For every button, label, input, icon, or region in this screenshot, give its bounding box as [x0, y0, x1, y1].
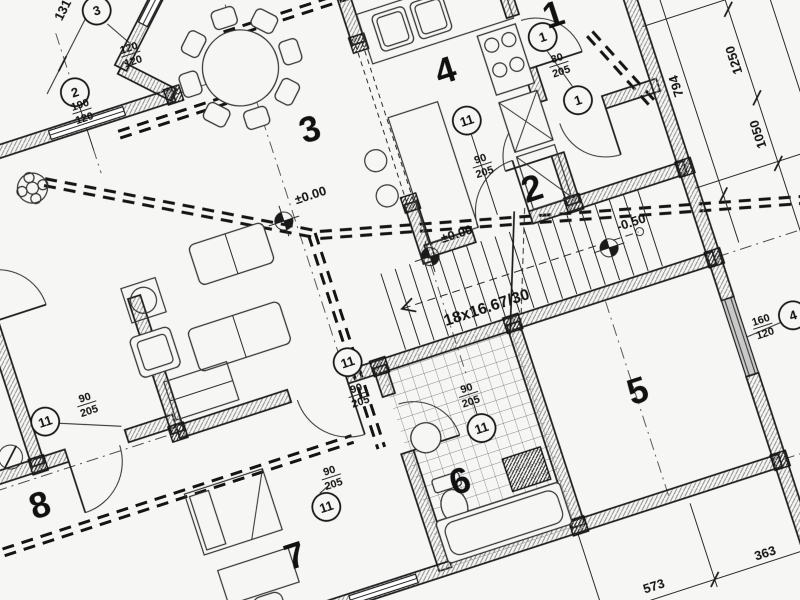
- level-zero-label: ±0.00: [293, 183, 328, 207]
- marker-door-1: 1: [560, 83, 595, 118]
- level-symbol: [589, 228, 629, 268]
- room-label-3: 3: [294, 106, 326, 151]
- marker-window-4: 4: [775, 298, 800, 333]
- pillow: [189, 491, 225, 550]
- dining-table-set: [162, 0, 318, 146]
- size-door-room1: 80 205: [546, 50, 573, 81]
- dim-1050: 1050: [746, 118, 769, 150]
- svg-text:80: 80: [549, 51, 564, 66]
- room-label-4: 4: [429, 48, 461, 93]
- marker-window-3: 3: [79, 0, 114, 28]
- room-label-8: 8: [24, 482, 56, 527]
- dim-573: 573: [641, 576, 666, 597]
- size-door-standard: 90 205: [74, 389, 101, 420]
- dim-131: 131: [51, 0, 74, 23]
- floor-plan-sheet: 794 1250 1050 573 363 131: [0, 0, 800, 600]
- armchair: [129, 326, 182, 379]
- room-label-2: 2: [516, 166, 548, 211]
- stove: [477, 24, 534, 95]
- size-door-standard: 90 205: [318, 462, 345, 493]
- svg-text:90: 90: [473, 152, 488, 167]
- level-minus-label: -0.50: [615, 211, 648, 234]
- stool: [362, 147, 390, 175]
- marker-door-11: 11: [309, 489, 344, 524]
- blueprint-scan: 794 1250 1050 573 363 131: [0, 0, 800, 600]
- stool: [373, 182, 401, 210]
- size-window-4: 160 120: [750, 312, 777, 343]
- size-door-standard: 90 205: [469, 150, 496, 181]
- dim-1250: 1250: [722, 44, 745, 76]
- room-label-5: 5: [622, 368, 654, 413]
- room7-furniture: [184, 469, 307, 600]
- plant-symbol: [12, 168, 52, 208]
- wall-wing-west-b: [0, 320, 44, 467]
- svg-text:90: 90: [77, 391, 92, 406]
- marker-door-11: 11: [449, 103, 484, 138]
- size-door-standard: 90 205: [345, 380, 372, 411]
- svg-text:90: 90: [322, 464, 337, 479]
- floor-plan-drawing: 794 1250 1050 573 363 131: [0, 0, 800, 600]
- room-label-7: 7: [279, 533, 311, 578]
